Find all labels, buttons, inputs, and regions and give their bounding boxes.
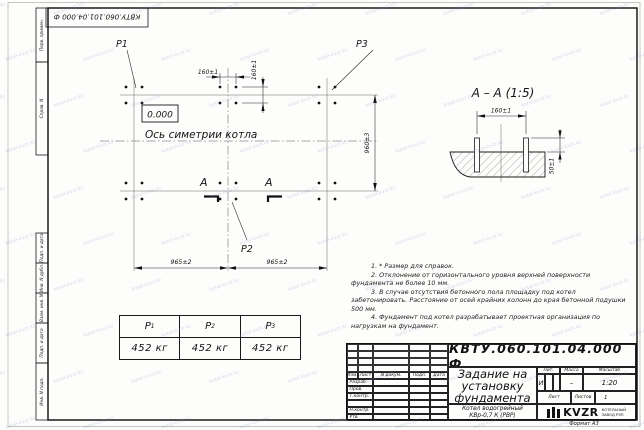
margin-label: Инв. N подл. xyxy=(39,377,45,405)
note-4: 4. Фундамент под котел разрабатывает про… xyxy=(351,313,634,330)
dim-text: 965±2 xyxy=(267,259,288,266)
section-cut-marks: A A xyxy=(199,176,282,202)
sheets-label: Листов xyxy=(571,391,595,404)
col-podp: Подп. xyxy=(409,372,430,379)
margin-label: Подп. и дата xyxy=(39,328,45,358)
col-izm: Изм. xyxy=(347,372,358,379)
dim-text: 160±1 xyxy=(251,60,258,80)
load-table-header: P2 xyxy=(179,316,239,338)
masshtab-value: 1:20 xyxy=(583,374,636,391)
load-value: 452 кг xyxy=(179,338,239,360)
row-blank xyxy=(347,400,373,407)
plan-axes xyxy=(100,68,378,271)
section-letter: A xyxy=(199,176,208,189)
dim-text: 960±3 xyxy=(364,132,371,153)
row-utv: Утв. xyxy=(347,414,373,421)
col-data: Дата xyxy=(430,372,448,379)
sheets-value: 1 xyxy=(595,391,636,404)
col-list: Лист xyxy=(358,372,373,379)
drawing-sheet: Перв. примен. Справ. N Подп. и дата Инв.… xyxy=(0,0,644,430)
row-tkontr: Т.контр. xyxy=(347,393,373,400)
load-table-header: P1 xyxy=(120,316,179,338)
doc-number: КВТУ.060.101.04.000 Ф xyxy=(448,344,636,367)
kvzr-logo-subtext: КОТЕЛЬНЫЙ ЗАВОД РЭП xyxy=(602,408,626,416)
margin-column: Перв. примен. Справ. N Подп. и дата Инв.… xyxy=(36,8,48,420)
dim-group-y: 160±1 xyxy=(242,60,268,113)
note-1: 1. * Размер для справок. xyxy=(351,262,634,271)
load-value: 452 кг xyxy=(120,338,179,360)
concrete-pad xyxy=(450,152,545,177)
margin-label: Инв. N дубл. xyxy=(39,264,45,292)
lit-header: Лит. xyxy=(537,367,560,374)
elevation-value: 0.000 xyxy=(147,111,173,121)
kvzr-logo-text: KVZR xyxy=(563,406,598,419)
margin-label: Справ. N xyxy=(39,98,45,118)
note-2: 2. Отклонение от горизонтального уровня … xyxy=(351,271,634,288)
sheet-label: Лист xyxy=(537,391,571,404)
label-p1: P1 xyxy=(116,39,128,50)
drawing-title: Задание на установку фундамента xyxy=(448,367,537,404)
load-table-value-row: 452 кг 452 кг 452 кг xyxy=(120,338,300,360)
load-point-labels: P1 P3 P2 xyxy=(116,39,373,255)
label-p2: P2 xyxy=(241,244,253,255)
lit-value: И xyxy=(537,374,545,391)
corner-stamp: КВТУ.060.101.04.000 Ф xyxy=(46,8,148,27)
load-table: P1 P2 P3 452 кг 452 кг 452 кг xyxy=(119,315,301,360)
col-doc: N докум. xyxy=(373,372,409,379)
anchor-bolt xyxy=(475,138,480,172)
margin-label: Подп. и дата xyxy=(39,233,45,263)
dim-height: 960±3 xyxy=(364,95,377,191)
section-detail: A – A (1:5) 160±1 50±1 xyxy=(450,86,565,182)
dim-group-x: 160±1 xyxy=(198,69,250,84)
label-p3: P3 xyxy=(356,39,368,50)
dim-text: 160±1 xyxy=(198,69,218,76)
product-name: Котел водогрейный КВр-0,7 К (РВР) xyxy=(448,404,537,421)
corner-stamp-text: КВТУ.060.101.04.000 Ф xyxy=(54,13,141,22)
load-table-header-row: P1 P2 P3 xyxy=(120,316,300,338)
masshtab-header: Масштаб xyxy=(583,367,636,374)
section-title: A – A (1:5) xyxy=(471,86,535,100)
note-3: 3. В случае отсутствия бетонного пола пл… xyxy=(351,288,634,314)
revision-grid xyxy=(347,344,448,372)
kvzr-logo-icon xyxy=(547,407,560,418)
dim-text: 965±2 xyxy=(171,259,192,266)
anchor-bolt-dots xyxy=(125,86,337,201)
dim-text: 50±1 xyxy=(549,158,556,174)
load-value: 452 кг xyxy=(240,338,300,360)
symmetry-axis-caption: Ось симетрии котла xyxy=(145,129,257,141)
load-table-header: P3 xyxy=(240,316,300,338)
massa-header: Масса xyxy=(560,367,583,374)
row-prov: Пров. xyxy=(347,386,373,393)
logo-cell: KVZR КОТЕЛЬНЫЙ ЗАВОД РЭП xyxy=(537,404,636,421)
margin-label: Перв. примен. xyxy=(39,19,45,51)
row-razrab: Разраб. xyxy=(347,379,373,386)
notes-block: 1. * Размер для справок. 2. Отклонение о… xyxy=(351,262,634,330)
section-letter: A xyxy=(264,176,273,189)
massa-value: – xyxy=(560,374,583,391)
row-nkontr: Н.контр. xyxy=(347,407,373,414)
dim-text: 160±1 xyxy=(491,108,511,115)
margin-label: Взам. инв. N xyxy=(39,293,45,322)
dim-spans: 965±2 965±2 xyxy=(134,259,327,270)
title-block: Изм. Лист N докум. Подп. Дата Разраб. Пр… xyxy=(346,343,637,420)
anchor-bolt xyxy=(524,138,529,172)
format-label: Формат А3 xyxy=(554,421,614,427)
